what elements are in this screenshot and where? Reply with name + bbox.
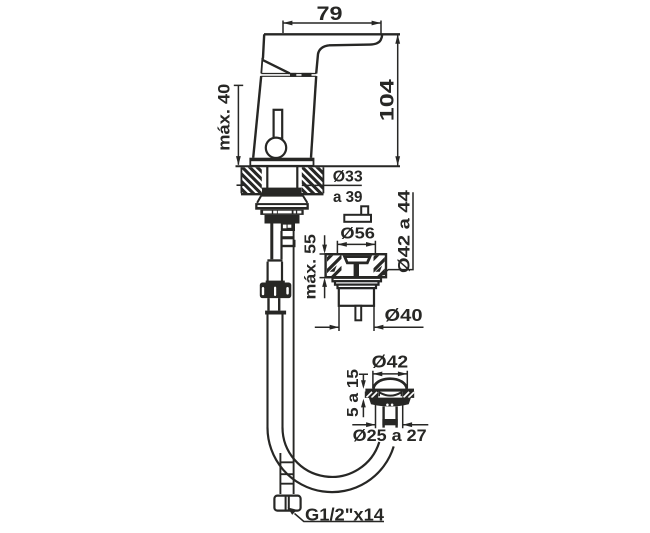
svg-text:máx. 55: máx. 55	[303, 234, 320, 300]
svg-text:Ø33: Ø33	[333, 168, 363, 185]
svg-text:Ø56: Ø56	[340, 225, 375, 242]
svg-text:Ø40: Ø40	[385, 305, 423, 325]
svg-text:G1/2"x14: G1/2"x14	[305, 504, 384, 524]
svg-text:Ø42 a 44: Ø42 a 44	[395, 190, 414, 273]
svg-text:a 39: a 39	[333, 189, 363, 206]
svg-text:Ø42: Ø42	[372, 351, 409, 371]
svg-text:5 a 15: 5 a 15	[345, 369, 362, 417]
svg-text:máx. 40: máx. 40	[215, 84, 234, 151]
svg-text:Ø25 a 27: Ø25 a 27	[353, 427, 427, 445]
svg-text:104: 104	[378, 79, 399, 122]
svg-text:79: 79	[317, 4, 343, 25]
